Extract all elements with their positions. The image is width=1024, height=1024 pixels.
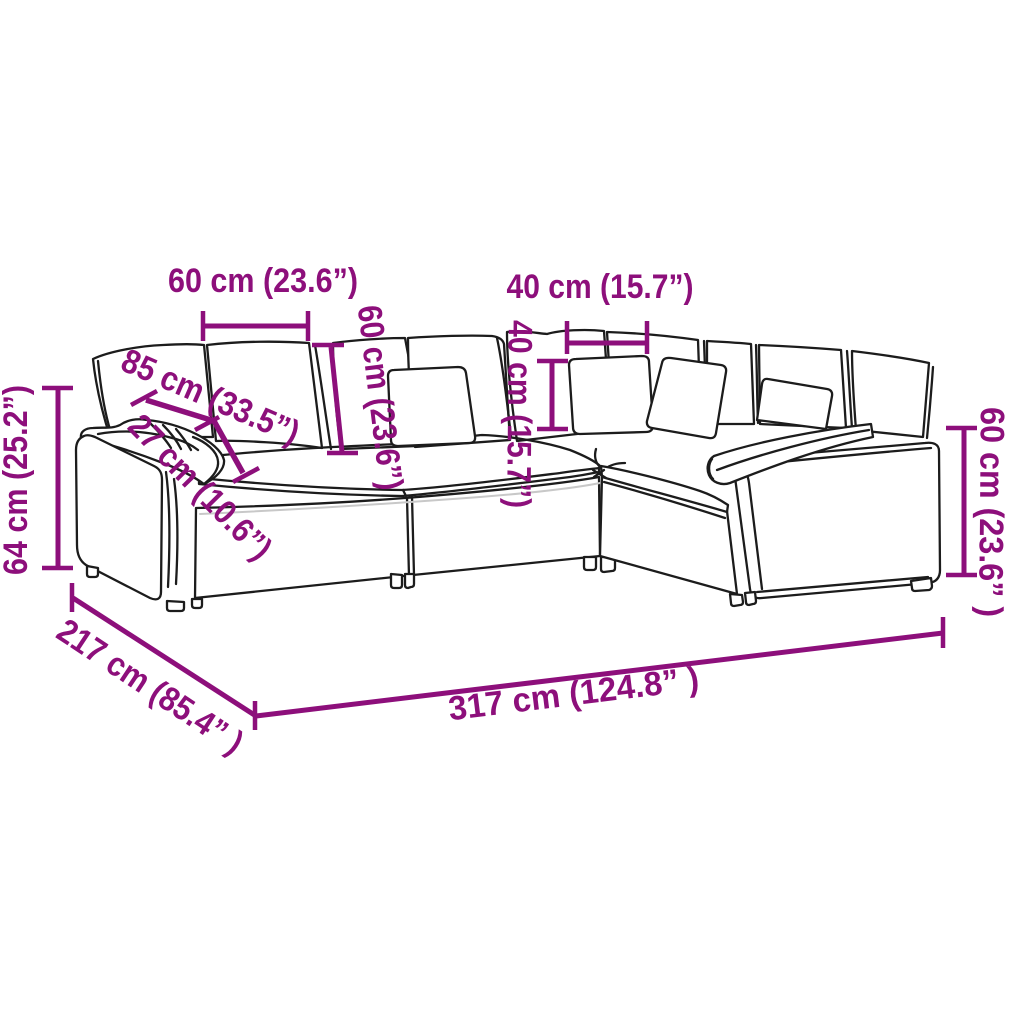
svg-text:60 cm (23.6”): 60 cm (23.6”) bbox=[168, 262, 358, 300]
svg-text:317 cm (124.8” ): 317 cm (124.8” ) bbox=[446, 660, 701, 728]
svg-text:60 cm (23.6” ): 60 cm (23.6” ) bbox=[971, 407, 1011, 617]
svg-text:64 cm (25.2”): 64 cm (25.2”) bbox=[0, 385, 35, 575]
svg-text:217 cm (85.4” ): 217 cm (85.4” ) bbox=[50, 612, 250, 762]
svg-text:40 cm (15.7”): 40 cm (15.7”) bbox=[507, 268, 694, 306]
svg-text:40 cm (15.7”): 40 cm (15.7”) bbox=[499, 320, 539, 508]
